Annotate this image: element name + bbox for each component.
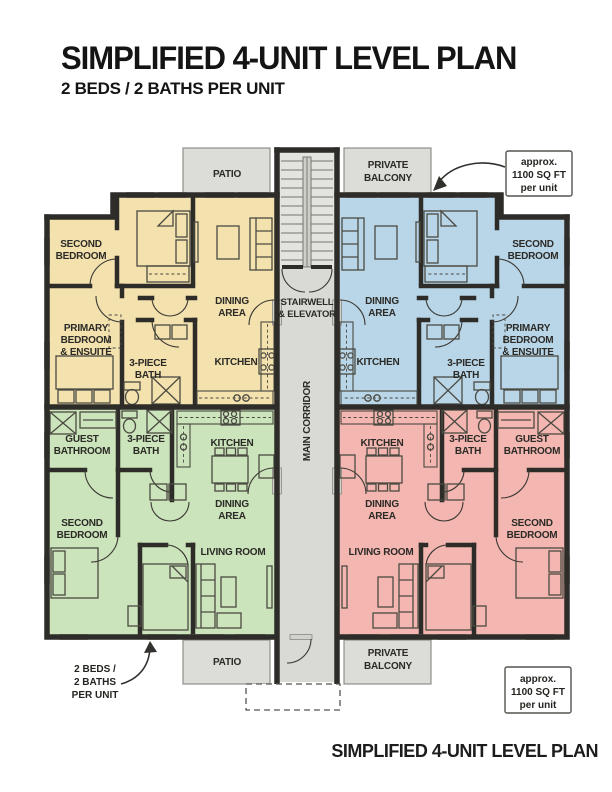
room-label-dining-2: AREA (218, 511, 246, 522)
beds-note-line1: 2 BEDS / (74, 664, 116, 675)
sqft-bottom-line2: 1100 SQ FT (511, 687, 565, 698)
room-label-second-bedroom-2: BEDROOM (508, 251, 559, 262)
room-label-second-bedroom-2: BEDROOM (507, 530, 558, 541)
page: SIMPLIFIED 4-UNIT LEVEL PLAN 2 BEDS / 2 … (0, 0, 612, 792)
label-balcony-bottom-1: PRIVATE (368, 648, 409, 659)
room-label-dining: DINING (365, 499, 399, 510)
room-label-dining: DINING (215, 499, 249, 510)
room-label-primary-bedroom-3: & ENSUITE (502, 347, 554, 358)
sqft-annotation-top: approx. 1100 SQ FT per unit (433, 151, 572, 196)
sqft-annotation-bottom: approx. 1100 SQ FT per unit (505, 667, 571, 713)
room-label-dining: DINING (365, 296, 399, 307)
room-label-primary-bedroom-2: BEDROOM (61, 335, 112, 346)
room-label-bath: 3-PIECE (127, 434, 165, 445)
beds-note-line3: PER UNIT (72, 690, 119, 701)
room-label-guest-bathroom: GUEST (65, 434, 99, 445)
label-balcony-bottom-2: BALCONY (364, 661, 413, 672)
label-stairwell-1: STAIRWELL (281, 297, 334, 308)
room-label-kitchen: KITCHEN (360, 438, 403, 449)
sqft-top-line3: per unit (521, 183, 558, 194)
beds-note-line2: 2 BATHS (74, 677, 116, 688)
label-balcony-top-1: PRIVATE (368, 160, 409, 171)
sqft-bottom-line1: approx. (520, 674, 556, 685)
label-balcony-top-2: BALCONY (364, 173, 413, 184)
room-label-dining-2: AREA (368, 308, 396, 319)
sqft-top-line2: 1100 SQ FT (512, 170, 566, 181)
sqft-top-line1: approx. (521, 157, 557, 168)
room-label-bath-2: BATH (133, 446, 159, 457)
room-label-second-bedroom-2: BEDROOM (56, 251, 107, 262)
room-label-kitchen: KITCHEN (356, 357, 399, 368)
label-patio-bottom: PATIO (213, 657, 241, 668)
room-label-second-bedroom-2: BEDROOM (57, 530, 108, 541)
room-label-living-room: LIVING ROOM (200, 547, 265, 558)
room-label-bath-2: BATH (455, 446, 481, 457)
room-label-second-bedroom: SECOND (60, 239, 102, 250)
footer-title: SIMPLIFIED 4-UNIT LEVEL PLAN (331, 741, 598, 762)
room-label-bath: 3-PIECE (447, 358, 485, 369)
room-label-primary-bedroom: PRIMARY (506, 323, 551, 334)
room-label-bath-2: BATH (135, 370, 161, 381)
room-label-second-bedroom: SECOND (511, 518, 553, 529)
label-patio-top: PATIO (213, 169, 241, 180)
room-label-guest-bathroom-2: BATHROOM (54, 446, 111, 457)
beds-note-annotation: 2 BEDS / 2 BATHS PER UNIT (72, 641, 157, 701)
entry-stoop-outline (246, 684, 340, 710)
room-label-dining-2: AREA (368, 511, 396, 522)
room-label-bath: 3-PIECE (449, 434, 487, 445)
room-label-primary-bedroom-2: BEDROOM (503, 335, 554, 346)
room-label-guest-bathroom: GUEST (515, 434, 549, 445)
room-label-living-room: LIVING ROOM (348, 547, 413, 558)
room-label-kitchen: KITCHEN (210, 438, 253, 449)
floor-plan-svg: PATIO PRIVATE BALCONY STAIRWELL & ELEVAT… (0, 0, 612, 792)
room-label-bath: 3-PIECE (129, 358, 167, 369)
room-label-guest-bathroom-2: BATHROOM (504, 446, 561, 457)
room-label-bath-2: BATH (453, 370, 479, 381)
label-main-corridor: MAIN CORRIDOR (302, 380, 313, 461)
label-stairwell-2: & ELEVATOR (278, 309, 336, 320)
sqft-bottom-line3: per unit (520, 700, 557, 711)
balcony-top-area (344, 148, 431, 195)
room-label-primary-bedroom: PRIMARY (64, 323, 109, 334)
room-label-second-bedroom: SECOND (61, 518, 103, 529)
room-label-dining: DINING (215, 296, 249, 307)
room-label-second-bedroom: SECOND (512, 239, 554, 250)
room-label-primary-bedroom-3: & ENSUITE (60, 347, 112, 358)
room-label-kitchen: KITCHEN (214, 357, 257, 368)
room-label-dining-2: AREA (218, 308, 246, 319)
